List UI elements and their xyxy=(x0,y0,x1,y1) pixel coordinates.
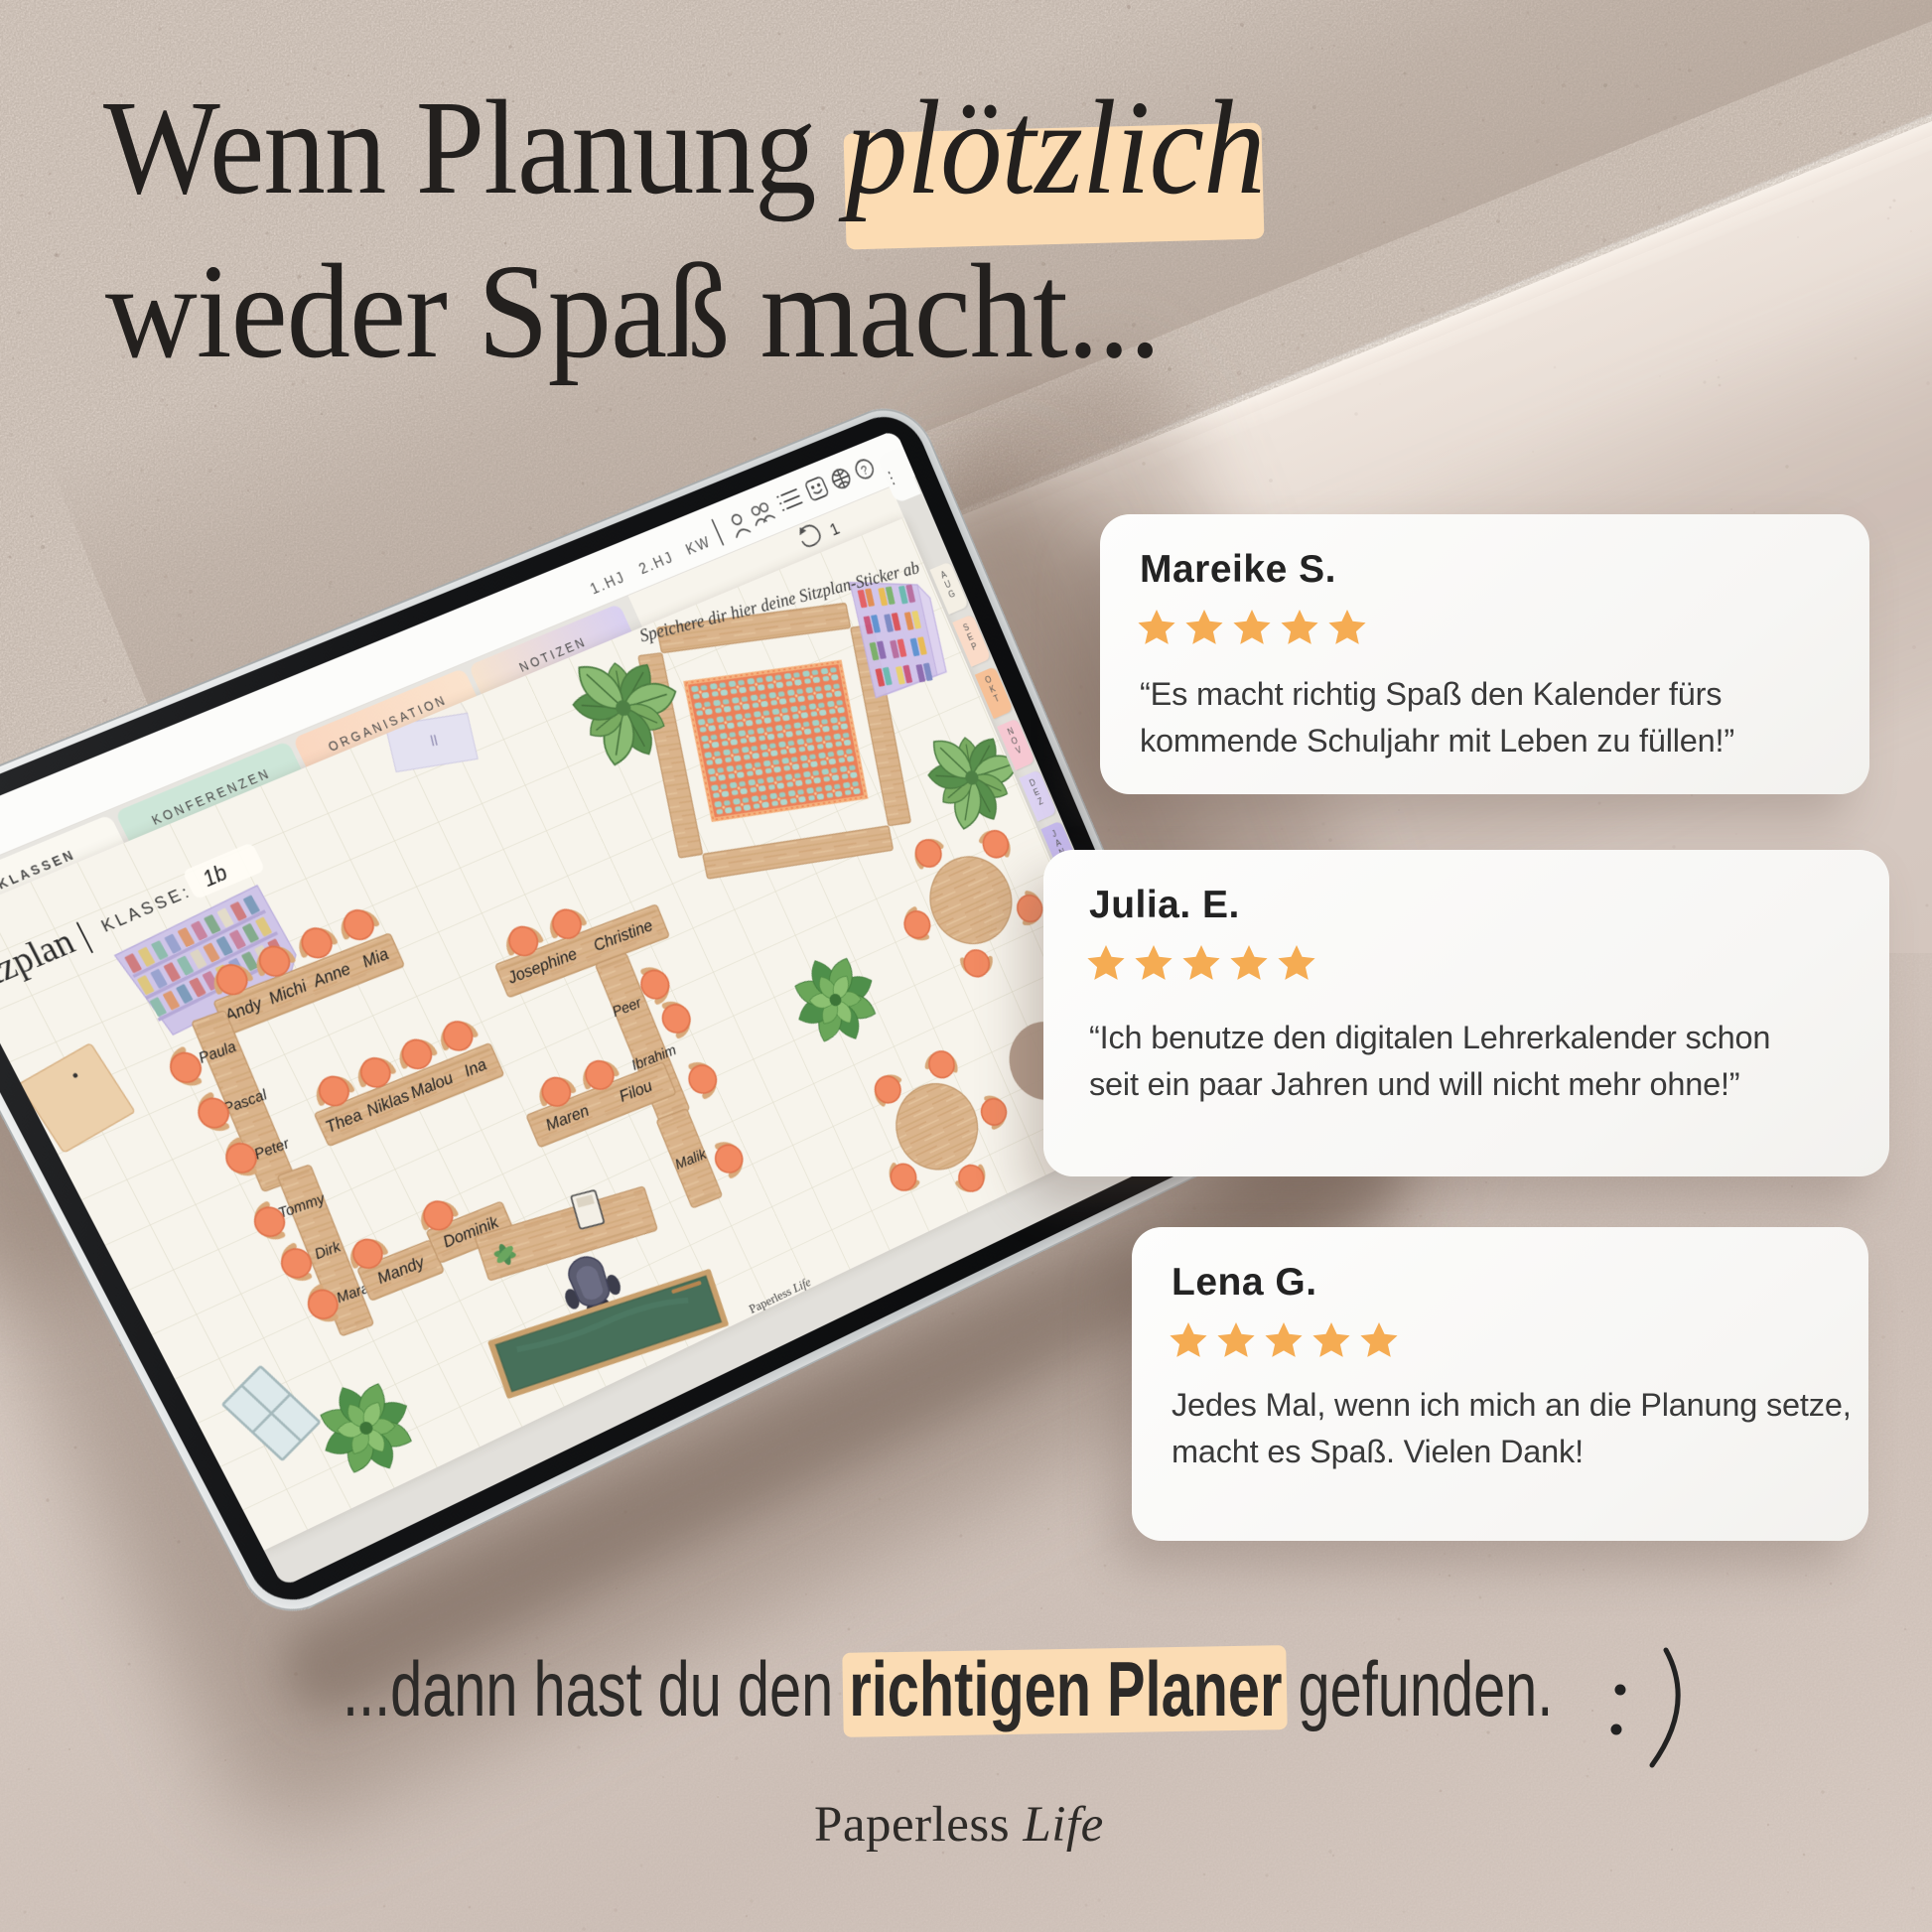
svg-text:?: ? xyxy=(859,463,870,478)
svg-text:2.HJ: 2.HJ xyxy=(636,549,676,578)
svg-text:1.HJ: 1.HJ xyxy=(588,569,628,598)
svg-text:KW: KW xyxy=(683,533,714,558)
svg-text:1: 1 xyxy=(827,518,842,539)
